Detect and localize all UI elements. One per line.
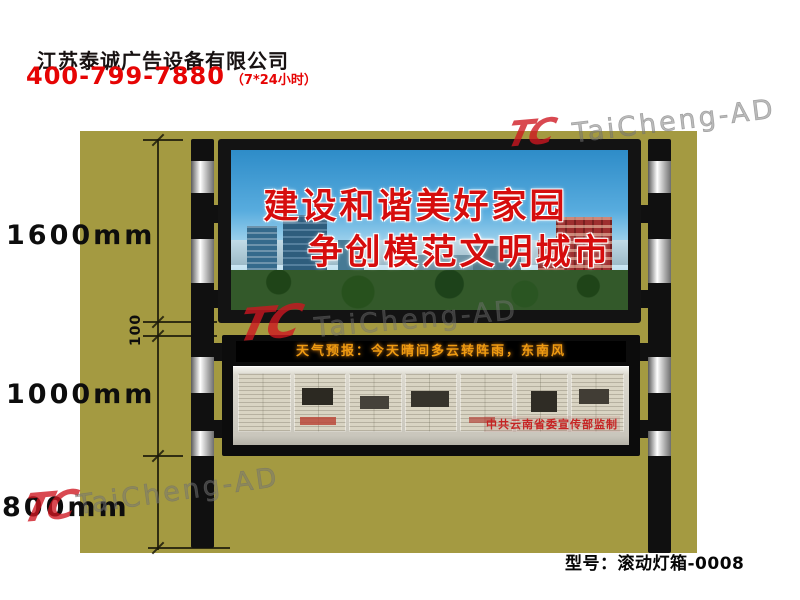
- newspaper-page: [349, 373, 402, 432]
- dimension-tick: [143, 139, 183, 141]
- billboard-poster: 建设和谐美好家园 争创模范文明城市: [231, 150, 628, 310]
- newspaper-page: [294, 373, 347, 432]
- dimension-label-1600mm: 1600mm: [6, 220, 155, 251]
- pole-silver-band: [648, 239, 671, 283]
- dimension-tick: [143, 455, 183, 457]
- taicheng-logo-watermark: TC: [234, 298, 303, 349]
- product-page: 江苏泰诚广告设备有限公司 400-799-7880（7*24小时） 1600mm…: [0, 0, 800, 600]
- dimension-label-100: 100: [128, 310, 144, 350]
- scrolling-lightbox: 天气预报：今天晴间多云转阵雨，东南风 中共云南省委宣传部监制: [222, 335, 640, 456]
- newspaper-page: [405, 373, 458, 432]
- pole-silver-band: [191, 161, 214, 193]
- phone-row: 400-799-7880（7*24小时）: [26, 62, 317, 90]
- model-number-label: 型号：滚动灯箱-0008: [565, 549, 744, 574]
- poster-slogan-line2: 争创模范文明城市: [261, 224, 628, 275]
- taicheng-logo-watermark: TC: [19, 485, 78, 529]
- newspaper-display: 中共云南省委宣传部监制: [233, 366, 629, 445]
- publisher-caption: 中共云南省委宣传部监制: [484, 416, 620, 432]
- poster-slogan-line1: 建设和谐美好家园: [231, 178, 614, 229]
- pole-silver-band: [191, 431, 214, 456]
- pole-silver-band: [648, 357, 671, 393]
- led-ticker: 天气预报：今天晴间多云转阵雨，东南风: [236, 341, 626, 362]
- pole-silver-band: [648, 431, 671, 456]
- dimension-label-1000mm: 1000mm: [6, 379, 155, 410]
- support-pole-right: [648, 139, 671, 553]
- dimension-baseline: [148, 547, 230, 549]
- pole-silver-band: [191, 239, 214, 283]
- newspaper-page: [238, 373, 291, 432]
- pole-silver-band: [191, 357, 214, 393]
- pole-silver-band: [648, 161, 671, 193]
- hotline-hours: （7*24小时）: [231, 73, 317, 88]
- hotline-number: 400-799-7880: [26, 62, 225, 90]
